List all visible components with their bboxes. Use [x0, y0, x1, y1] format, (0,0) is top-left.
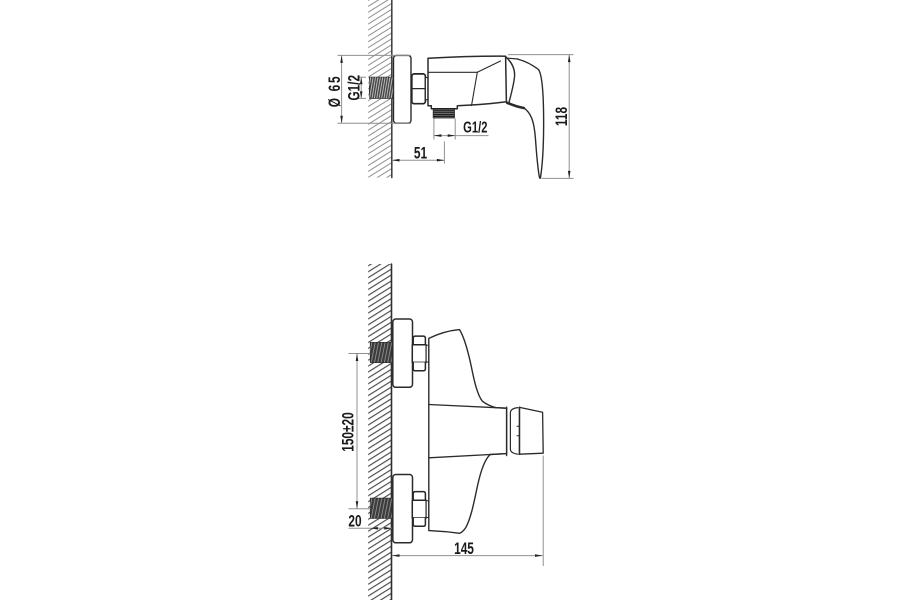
svg-text:Ø 65: Ø 65: [326, 75, 345, 107]
svg-text:145: 145: [454, 540, 474, 559]
svg-text:118: 118: [553, 107, 572, 126]
svg-text:G1/2: G1/2: [345, 75, 364, 101]
svg-text:G1/2: G1/2: [463, 117, 488, 136]
svg-text:51: 51: [414, 145, 427, 164]
svg-text:20: 20: [348, 513, 361, 532]
svg-text:150±20: 150±20: [340, 412, 359, 452]
